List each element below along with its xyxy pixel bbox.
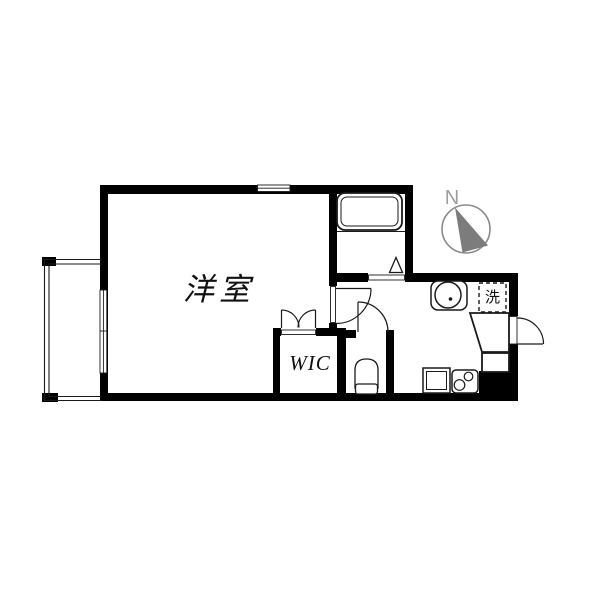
entrance-door-icon [518,318,544,344]
door-swing-icon [336,289,371,324]
toilet-icon [355,359,378,394]
laundry-label: 洗 [485,289,500,306]
balcony-railing-icon [45,260,103,401]
door-swing-icon [358,302,388,332]
compass-north-label: N [445,187,459,209]
double-door-icon [282,310,316,328]
bathroom-door-jamb [369,275,405,280]
window-icon [100,290,107,373]
main-room-label: 洋室 [183,272,255,307]
floor-plan: N 洋室 WIC 洗 [0,0,600,600]
wall-entry-block [479,371,518,400]
kitchen-sink-icon [423,368,450,393]
wic-door-jamb [282,330,316,335]
folding-door-icon [390,258,403,273]
wall-washroom-top [329,273,518,282]
window-icon [258,185,291,192]
wall-bottom [100,393,518,401]
washroom-door-jamb [331,287,336,323]
bathtub-icon [337,193,405,232]
wall-wic-right [337,328,346,401]
compass-icon: N [442,187,490,253]
toilet-door-opening [356,330,386,338]
entrance-step-icon [470,313,509,372]
floor-plan-page: N 洋室 WIC 洗 [0,0,600,600]
washbasin-icon [431,281,467,310]
wall-wic-left [273,328,280,401]
stove-icon [452,370,478,393]
wall-bathroom-right [405,185,413,282]
entrance-door-jamb [509,317,517,345]
wic-label: WIC [289,351,331,375]
wall-toilet-right [386,330,394,401]
